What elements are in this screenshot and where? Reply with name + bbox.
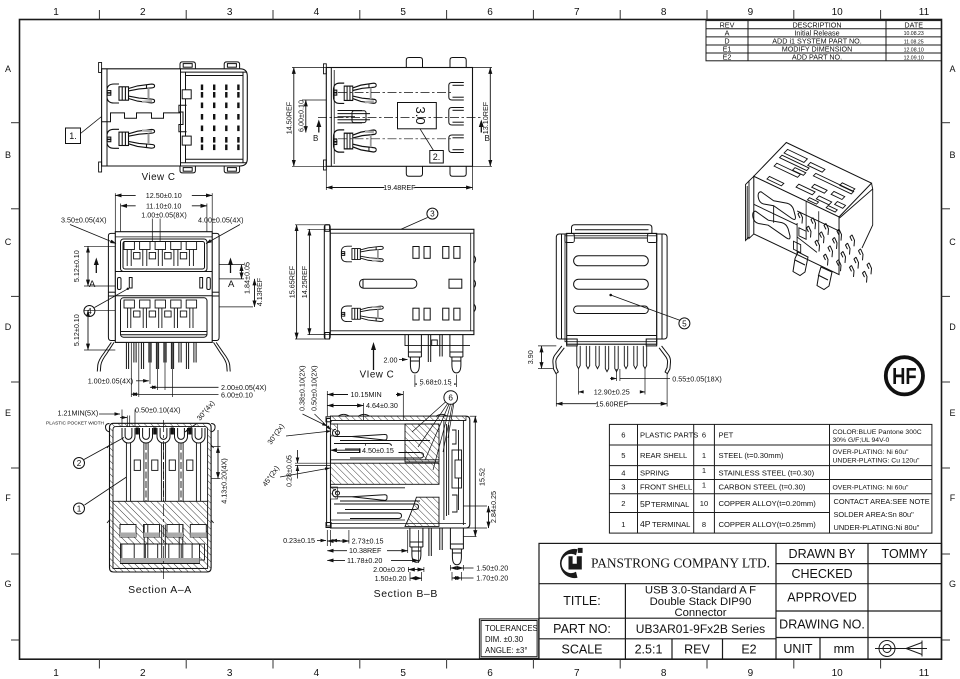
svg-text:4: 4 [314, 7, 320, 18]
svg-text:7: 7 [574, 7, 580, 18]
svg-text:6: 6 [448, 394, 453, 403]
svg-text:DRAWING NO.: DRAWING NO. [779, 618, 865, 632]
svg-text:2.5:1: 2.5:1 [635, 643, 663, 657]
svg-text:HF: HF [892, 364, 917, 389]
svg-text:1.21MIN(5X): 1.21MIN(5X) [58, 408, 99, 417]
svg-text:5: 5 [621, 451, 625, 460]
svg-text:REV: REV [684, 643, 710, 657]
svg-text:30% G/F;UL 94V-0: 30% G/F;UL 94V-0 [833, 437, 890, 444]
svg-text:7: 7 [574, 668, 580, 679]
svg-text:11: 11 [919, 668, 930, 679]
svg-text:PANSTRONG COMPANY LTD.: PANSTRONG COMPANY LTD. [591, 556, 770, 571]
svg-text:PET: PET [719, 431, 734, 440]
svg-text:11: 11 [919, 7, 930, 18]
svg-text:1.50±0.20: 1.50±0.20 [375, 574, 407, 583]
svg-text:12.90±0.25: 12.90±0.25 [594, 388, 630, 397]
svg-text:0.50±0.10(2X): 0.50±0.10(2X) [310, 365, 319, 411]
svg-text:2.00: 2.00 [384, 355, 398, 364]
svg-text:PLASTIC PARTS: PLASTIC PARTS [640, 431, 698, 440]
svg-text:Section A–A: Section A–A [128, 584, 192, 596]
svg-text:11.10±0.10: 11.10±0.10 [146, 201, 181, 210]
svg-text:0.38±0.10(2X): 0.38±0.10(2X) [298, 365, 307, 411]
svg-text:CARBON STEEL (t=0.30): CARBON STEEL (t=0.30) [719, 483, 806, 492]
svg-text:COPPER ALLOY(t=0.20mm): COPPER ALLOY(t=0.20mm) [719, 499, 817, 508]
svg-text:14.25REF: 14.25REF [300, 265, 309, 298]
svg-text:1: 1 [702, 451, 706, 460]
svg-text:A: A [5, 64, 11, 74]
svg-text:C: C [949, 237, 956, 247]
svg-text:1.00±0.05(4X): 1.00±0.05(4X) [88, 376, 134, 385]
svg-text:USB 3.0-Standard A F: USB 3.0-Standard A F [645, 585, 756, 597]
svg-text:CHECKED: CHECKED [791, 567, 852, 581]
svg-text:6: 6 [487, 668, 493, 679]
svg-text:5: 5 [682, 319, 687, 328]
svg-text:10.15MIN: 10.15MIN [351, 390, 382, 399]
svg-text:1.: 1. [69, 131, 77, 141]
svg-text:8: 8 [702, 520, 706, 529]
svg-text:View C: View C [142, 172, 176, 183]
svg-text:1: 1 [53, 7, 59, 18]
svg-text:6: 6 [621, 431, 625, 440]
svg-text:E: E [949, 408, 955, 418]
svg-text:4: 4 [314, 668, 320, 679]
svg-text:TOLERANCES: TOLERANCES [485, 624, 538, 633]
svg-text:19.48REF: 19.48REF [383, 183, 416, 192]
svg-text:1.00±0.05(8X): 1.00±0.05(8X) [141, 211, 187, 220]
svg-text:3: 3 [621, 483, 625, 492]
svg-text:3: 3 [430, 210, 435, 219]
svg-text:1.50±0.20: 1.50±0.20 [476, 564, 508, 573]
svg-text:mm: mm [834, 642, 855, 656]
svg-text:4.00±0.05(4X): 4.00±0.05(4X) [198, 215, 244, 224]
svg-text:1: 1 [702, 481, 706, 490]
svg-text:PLASTIC POCKET WIDTH: PLASTIC POCKET WIDTH [46, 421, 105, 427]
svg-text:4.13REF: 4.13REF [255, 277, 264, 306]
svg-text:14.50REF: 14.50REF [285, 101, 294, 134]
svg-text:APPROVED: APPROVED [787, 591, 856, 605]
svg-text:2.73±0.15: 2.73±0.15 [352, 537, 384, 546]
svg-text:10: 10 [832, 7, 844, 18]
svg-text:D: D [949, 322, 956, 332]
svg-text:8: 8 [661, 668, 667, 679]
svg-text:4.50±0.15: 4.50±0.15 [362, 446, 394, 455]
svg-text:DIM. ±0.30: DIM. ±0.30 [485, 635, 524, 644]
svg-text:C: C [5, 237, 12, 247]
svg-text:TERMINAL: TERMINAL [652, 520, 690, 529]
svg-text:PART NO:: PART NO: [553, 622, 611, 636]
svg-text:4.64±0.30: 4.64±0.30 [366, 401, 398, 410]
svg-text:A: A [228, 279, 235, 290]
svg-text:ADD PART NO.: ADD PART NO. [792, 53, 842, 62]
svg-text:1: 1 [621, 520, 625, 529]
svg-text:6.00±0.10: 6.00±0.10 [297, 100, 306, 132]
svg-text:1: 1 [53, 668, 59, 679]
svg-text:A: A [949, 64, 955, 74]
svg-text:12.08.10: 12.08.10 [904, 47, 924, 53]
svg-text:11.08.25: 11.08.25 [904, 39, 924, 45]
svg-text:STEEL (t=0.30mm): STEEL (t=0.30mm) [719, 451, 784, 460]
svg-text:2: 2 [77, 459, 82, 468]
svg-text:E: E [5, 408, 11, 418]
svg-text:STAINLESS STEEL (t=0.30): STAINLESS STEEL (t=0.30) [719, 468, 815, 477]
svg-text:3.0: 3.0 [413, 107, 428, 125]
svg-text:TERMINAL: TERMINAL [651, 500, 689, 509]
svg-text:UNDER-PLATING: Cu 120u": UNDER-PLATING: Cu 120u" [833, 458, 920, 465]
svg-text:1.70±0.20: 1.70±0.20 [476, 574, 508, 583]
svg-text:1: 1 [702, 466, 706, 475]
svg-text:2.: 2. [433, 152, 441, 162]
svg-text:0.55±0.05(18X): 0.55±0.05(18X) [672, 374, 722, 383]
svg-text:Section B–B: Section B–B [374, 588, 438, 600]
svg-text:G: G [949, 579, 956, 589]
svg-text:UNIT: UNIT [783, 642, 813, 656]
svg-text:E2: E2 [741, 643, 756, 657]
svg-text:2.84±0.25: 2.84±0.25 [489, 491, 498, 523]
svg-text:2: 2 [140, 668, 146, 679]
svg-text:SPRING: SPRING [640, 468, 669, 477]
svg-text:OVER-PLATING: Ni 60u": OVER-PLATING: Ni 60u" [833, 449, 910, 456]
svg-text:FRONT SHELL: FRONT SHELL [640, 483, 692, 492]
svg-text:0.23±0.15: 0.23±0.15 [283, 536, 315, 545]
svg-text:Double Stack DIP90: Double Stack DIP90 [650, 596, 752, 608]
svg-text:F: F [950, 493, 956, 503]
svg-text:SOLDER AREA:Sn 80u": SOLDER AREA:Sn 80u" [834, 510, 915, 519]
svg-text:2: 2 [140, 7, 146, 18]
svg-text:9: 9 [748, 7, 754, 18]
svg-text:15.52: 15.52 [478, 468, 487, 486]
svg-text:5: 5 [400, 7, 406, 18]
svg-text:Connector: Connector [674, 607, 726, 619]
svg-text:3.90: 3.90 [526, 350, 535, 364]
svg-text:10.08.23: 10.08.23 [904, 31, 924, 37]
svg-text:5P: 5P [640, 499, 651, 509]
svg-text:6: 6 [487, 7, 493, 18]
svg-text:VIew C: VIew C [360, 370, 395, 381]
svg-text:F: F [5, 493, 11, 503]
svg-text:9: 9 [748, 668, 754, 679]
svg-text:TITLE:: TITLE: [563, 594, 601, 608]
svg-text:UB3AR01-9Fx2B Series: UB3AR01-9Fx2B Series [636, 622, 765, 636]
svg-text:12.09.10: 12.09.10 [904, 55, 924, 61]
svg-text:4P: 4P [640, 519, 651, 529]
svg-text:2.00±0.20: 2.00±0.20 [373, 565, 405, 574]
svg-text:B: B [949, 150, 955, 160]
svg-text:3: 3 [227, 7, 233, 18]
svg-text:5.68±0.15: 5.68±0.15 [420, 378, 452, 387]
svg-text:10: 10 [832, 668, 844, 679]
svg-text:8: 8 [661, 7, 667, 18]
svg-text:5: 5 [400, 668, 406, 679]
svg-text:D: D [5, 322, 12, 332]
svg-text:3: 3 [227, 668, 233, 679]
svg-text:15.60REF: 15.60REF [596, 399, 629, 408]
svg-text:UNDER-PLATING:Ni 80u": UNDER-PLATING:Ni 80u" [834, 523, 920, 532]
svg-text:A: A [89, 279, 96, 290]
svg-text:ANGLE: ±3°: ANGLE: ±3° [485, 646, 528, 655]
svg-text:TOMMY: TOMMY [882, 547, 929, 561]
svg-text:0.28±0.05: 0.28±0.05 [285, 455, 294, 487]
svg-text:B: B [5, 150, 11, 160]
svg-text:2: 2 [621, 499, 625, 508]
svg-text:DATE: DATE [904, 20, 923, 29]
svg-text:OVER-PLATING: Ni 60u": OVER-PLATING: Ni 60u" [833, 485, 910, 492]
svg-text:4: 4 [621, 468, 625, 477]
svg-text:10.38REF: 10.38REF [349, 546, 382, 555]
svg-text:G: G [4, 579, 11, 589]
svg-text:B: B [485, 134, 490, 143]
svg-text:SCALE: SCALE [562, 643, 603, 657]
svg-text:1: 1 [77, 505, 82, 514]
svg-text:5.12±0.10: 5.12±0.10 [72, 314, 81, 346]
svg-text:10: 10 [700, 499, 708, 508]
svg-text:REAR SHELL: REAR SHELL [640, 451, 687, 460]
svg-text:5.12±0.10: 5.12±0.10 [72, 250, 81, 282]
svg-text:6: 6 [702, 431, 706, 440]
svg-text:3.50±0.05(4X): 3.50±0.05(4X) [61, 215, 107, 224]
svg-text:B: B [313, 134, 318, 143]
svg-text:CONTACT AREA:SEE NOTE: CONTACT AREA:SEE NOTE [834, 497, 930, 506]
svg-text:0.50±0.10(4X): 0.50±0.10(4X) [135, 406, 181, 415]
svg-text:E2: E2 [723, 53, 732, 62]
svg-text:DRAWN BY: DRAWN BY [789, 547, 857, 561]
svg-text:15.65REF: 15.65REF [287, 265, 296, 298]
svg-text:COLOR:BLUE Pantone 300C: COLOR:BLUE Pantone 300C [833, 429, 922, 436]
svg-text:12.50±0.10: 12.50±0.10 [146, 191, 182, 200]
svg-text:13.10REF: 13.10REF [481, 101, 490, 134]
svg-text:1.84±0.05: 1.84±0.05 [243, 262, 252, 294]
svg-text:6.00±0.10: 6.00±0.10 [221, 390, 253, 399]
svg-text:11.78±0.20: 11.78±0.20 [347, 556, 382, 565]
svg-text:4.13±0.20(4X): 4.13±0.20(4X) [220, 458, 229, 504]
svg-text:COPPER ALLOY(t=0.25mm): COPPER ALLOY(t=0.25mm) [719, 520, 817, 529]
